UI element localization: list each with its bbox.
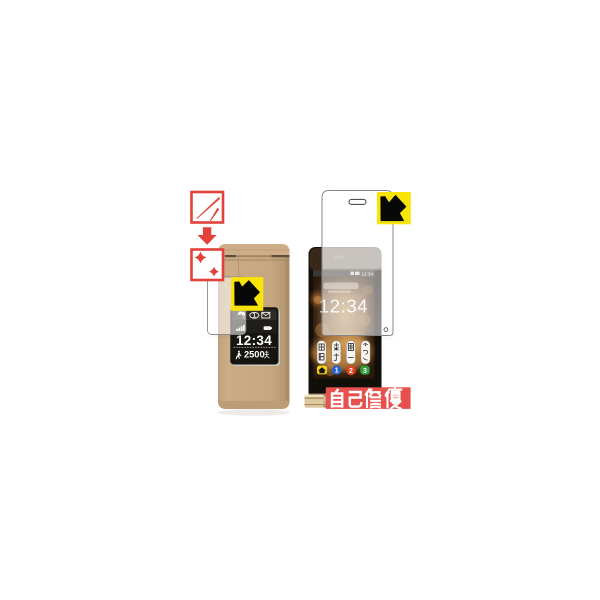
svg-text:12:34: 12:34 bbox=[236, 333, 272, 348]
svg-text:2: 2 bbox=[349, 368, 353, 375]
svg-text:2500: 2500 bbox=[244, 349, 265, 359]
svg-text:3: 3 bbox=[363, 368, 367, 375]
svg-text:1: 1 bbox=[335, 368, 339, 375]
